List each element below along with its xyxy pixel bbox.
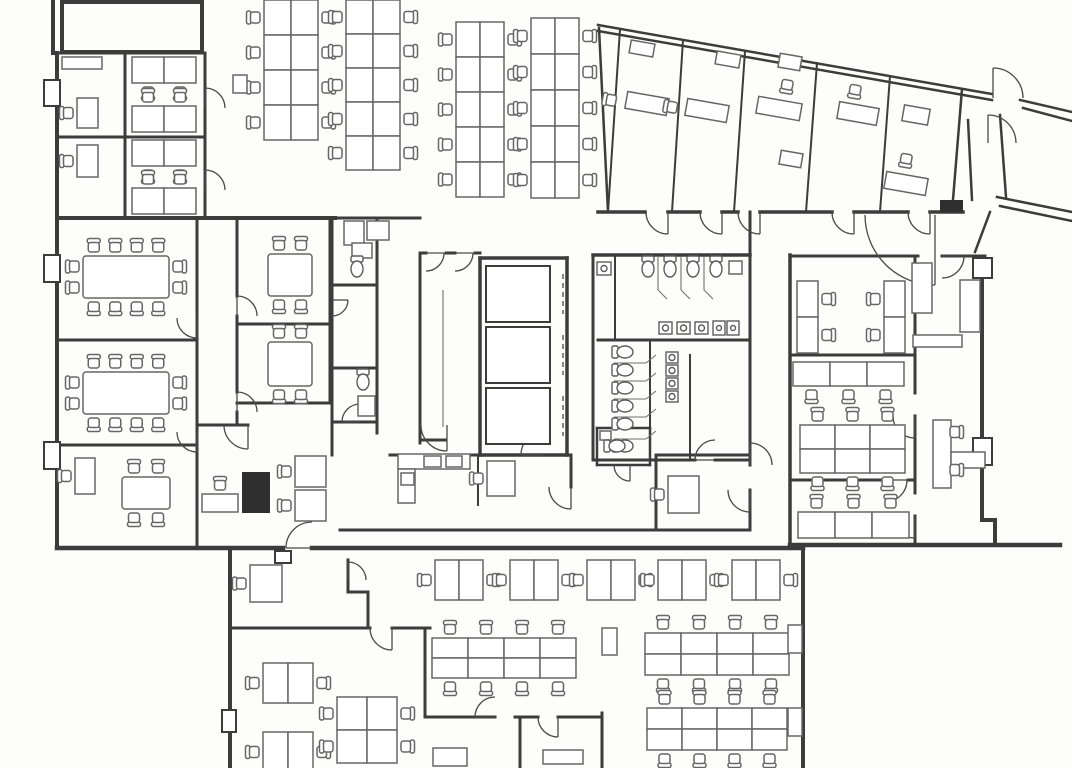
desk xyxy=(432,638,468,658)
desk xyxy=(164,106,196,132)
workstation xyxy=(278,490,327,521)
chair-seat xyxy=(129,464,140,474)
chair xyxy=(657,616,670,630)
couch xyxy=(913,335,962,347)
chair xyxy=(867,293,881,306)
chair xyxy=(329,45,343,58)
desk xyxy=(264,105,291,140)
chair-seat xyxy=(606,94,617,106)
chair xyxy=(130,355,143,369)
toilet-bowl xyxy=(617,400,633,412)
door-arc xyxy=(832,212,854,234)
door-arc xyxy=(538,717,558,737)
wall xyxy=(608,29,620,212)
chair xyxy=(152,418,165,432)
desk xyxy=(717,708,752,729)
chair-seat xyxy=(729,754,740,764)
chair xyxy=(842,390,855,404)
chair xyxy=(444,682,457,696)
door-arc xyxy=(646,212,668,234)
chair-seat xyxy=(518,175,528,186)
sink-basin xyxy=(681,325,687,331)
chair-seat xyxy=(900,153,912,164)
chair xyxy=(728,691,741,705)
conference-table xyxy=(268,342,312,386)
desk-cluster xyxy=(432,621,576,696)
desk xyxy=(884,171,928,195)
mop-sink xyxy=(729,261,742,274)
desk-cluster xyxy=(132,140,196,184)
chair xyxy=(583,66,597,79)
desk xyxy=(884,317,905,353)
chair xyxy=(174,89,187,103)
door-arc xyxy=(421,425,447,451)
desk xyxy=(682,560,706,600)
desk-cluster xyxy=(246,732,331,768)
chair-seat xyxy=(143,175,154,185)
chair-seat xyxy=(518,31,528,42)
toilet-bowl xyxy=(687,261,699,277)
chair-seat xyxy=(274,390,285,400)
desk xyxy=(433,748,467,766)
chair-seat xyxy=(153,418,164,428)
desk xyxy=(717,633,753,654)
chair-seat xyxy=(781,79,793,90)
desk xyxy=(555,90,579,126)
chair xyxy=(109,355,122,369)
chair-seat xyxy=(811,499,822,509)
chair xyxy=(763,691,776,705)
desk xyxy=(468,658,504,678)
chair xyxy=(152,239,165,253)
chair xyxy=(847,84,862,100)
desk xyxy=(555,126,579,162)
desk xyxy=(456,162,480,197)
sink-basin xyxy=(663,325,669,331)
chair xyxy=(273,300,286,314)
chair-seat xyxy=(237,578,247,589)
chair xyxy=(470,472,484,485)
chair xyxy=(87,302,100,316)
chair xyxy=(329,11,343,24)
chair xyxy=(418,574,432,587)
desk xyxy=(291,35,318,70)
door xyxy=(646,212,668,234)
chair-seat xyxy=(822,294,832,305)
chair-seat xyxy=(445,625,456,635)
chair xyxy=(516,621,529,635)
desk xyxy=(346,0,373,34)
desk xyxy=(132,57,164,83)
desk xyxy=(480,22,504,57)
desk xyxy=(531,126,555,162)
door-arc xyxy=(332,300,348,316)
chair xyxy=(329,79,343,92)
chair xyxy=(152,513,165,527)
chair xyxy=(247,11,261,24)
chair xyxy=(822,293,836,306)
desk xyxy=(800,425,835,449)
partition-line xyxy=(681,290,690,299)
chair xyxy=(728,754,741,768)
chair xyxy=(810,495,823,509)
chair xyxy=(66,397,80,410)
chair xyxy=(173,281,187,294)
door-arc xyxy=(286,522,312,548)
chair xyxy=(404,11,418,24)
chair-seat xyxy=(251,82,261,93)
door-arc xyxy=(993,68,1023,98)
elevator-car xyxy=(486,388,550,444)
chair-seat xyxy=(131,302,142,312)
chair-seat xyxy=(88,418,99,428)
chair xyxy=(552,682,565,696)
chair-seat xyxy=(443,34,453,45)
chair-seat xyxy=(583,175,593,186)
wall xyxy=(734,51,745,212)
desk xyxy=(132,140,164,166)
desk xyxy=(480,57,504,92)
toilet-icon xyxy=(642,256,654,277)
file-cabinet xyxy=(779,150,803,168)
sink-basin xyxy=(699,325,705,331)
chair-seat xyxy=(404,46,414,57)
chair-seat xyxy=(694,679,705,689)
sink-icon xyxy=(666,378,678,389)
chair-seat xyxy=(215,481,226,491)
toilet-icon xyxy=(612,382,633,394)
door-arc xyxy=(695,440,715,460)
chair-seat xyxy=(849,84,861,95)
chair-seat xyxy=(583,67,593,78)
door xyxy=(538,717,558,737)
chair-seat xyxy=(880,390,891,400)
door-arc xyxy=(205,88,225,108)
chair xyxy=(173,376,187,389)
toilet-bowl xyxy=(617,382,633,394)
chair-seat xyxy=(694,754,705,764)
sink xyxy=(600,431,611,440)
chair-seat xyxy=(583,103,593,114)
desk xyxy=(250,565,282,602)
desk xyxy=(870,425,905,449)
wall xyxy=(1000,206,1072,221)
chair-seat xyxy=(658,679,669,689)
chair xyxy=(66,260,80,273)
chair-seat xyxy=(574,575,584,586)
desk-return xyxy=(788,708,802,736)
door xyxy=(455,253,473,271)
chair xyxy=(152,460,165,474)
chair xyxy=(404,147,418,160)
desk xyxy=(752,708,787,729)
desk xyxy=(647,708,682,729)
door-arc xyxy=(728,490,750,512)
chair-seat xyxy=(694,695,705,705)
chair-seat xyxy=(518,139,528,150)
chair xyxy=(439,138,453,151)
chair-seat xyxy=(131,243,142,253)
workstation xyxy=(543,750,583,764)
desk xyxy=(681,633,717,654)
desk-cluster xyxy=(439,22,522,197)
chair-seat xyxy=(317,678,327,689)
desk xyxy=(373,68,400,102)
chair xyxy=(128,460,141,474)
chair xyxy=(273,390,286,404)
cabinet xyxy=(367,221,389,240)
desk-cluster xyxy=(715,560,798,600)
chair-seat xyxy=(445,682,456,692)
chair-seat xyxy=(848,499,859,509)
chair-seat xyxy=(110,418,121,428)
desk xyxy=(717,654,753,675)
chair-seat xyxy=(64,108,74,119)
chair-seat xyxy=(88,243,99,253)
chair-seat xyxy=(153,243,164,253)
desk xyxy=(870,449,905,473)
chair xyxy=(278,499,292,512)
desk xyxy=(798,512,835,538)
door-arc xyxy=(177,432,197,452)
chair xyxy=(58,470,72,483)
chair xyxy=(66,281,80,294)
chair xyxy=(246,746,260,759)
chair xyxy=(514,138,528,151)
chair xyxy=(401,707,415,720)
desk xyxy=(797,317,818,353)
workstation xyxy=(470,461,516,496)
chair-seat xyxy=(324,741,334,752)
chair-seat xyxy=(131,418,142,428)
desk xyxy=(681,654,717,675)
sink-basin xyxy=(601,266,607,272)
desk-cluster xyxy=(132,171,196,215)
toilet-icon xyxy=(710,256,722,277)
chair xyxy=(583,138,597,151)
desk xyxy=(555,54,579,90)
chair-seat xyxy=(655,489,665,500)
conference-table-group xyxy=(66,239,187,316)
chair-seat xyxy=(764,754,775,764)
chair xyxy=(884,495,897,509)
wall-mass xyxy=(940,200,963,212)
chair xyxy=(247,46,261,59)
desk xyxy=(835,512,872,538)
door xyxy=(205,170,225,190)
sink-basin xyxy=(669,394,675,400)
chair-seat xyxy=(481,682,492,692)
door xyxy=(177,432,197,452)
desk xyxy=(510,560,534,600)
chair-seat xyxy=(404,80,414,91)
chair-seat xyxy=(173,261,183,272)
chair xyxy=(480,682,493,696)
chair-seat xyxy=(70,377,80,388)
desk xyxy=(685,98,729,122)
chair-seat xyxy=(333,46,343,57)
wall-pilaster xyxy=(44,255,60,282)
desk xyxy=(835,449,870,473)
desk xyxy=(164,188,196,214)
chair xyxy=(779,79,794,95)
chair xyxy=(273,237,286,251)
chair xyxy=(811,408,824,422)
chair-seat xyxy=(296,241,307,251)
toilet-icon xyxy=(357,369,369,390)
desk xyxy=(291,0,318,35)
chair xyxy=(87,418,100,432)
chair-seat xyxy=(143,93,154,103)
chair-seat xyxy=(806,390,817,400)
chair xyxy=(173,397,187,410)
desk xyxy=(164,57,196,83)
chair xyxy=(846,477,859,491)
sink-icon xyxy=(666,352,678,363)
chair-seat xyxy=(153,359,164,369)
desk-cluster xyxy=(329,0,418,170)
desk-cluster xyxy=(247,0,336,140)
desk xyxy=(867,362,904,386)
desk xyxy=(480,162,504,197)
desk xyxy=(202,494,238,512)
desk xyxy=(647,729,682,750)
chair-seat xyxy=(333,80,343,91)
chair xyxy=(514,102,528,115)
desk xyxy=(346,68,373,102)
door-arc xyxy=(205,170,225,190)
chair xyxy=(87,239,100,253)
chair xyxy=(846,408,859,422)
chair-seat xyxy=(404,114,414,125)
chair-seat xyxy=(62,471,72,482)
chair xyxy=(601,92,617,107)
toilet-bowl xyxy=(617,364,633,376)
desk-cluster xyxy=(641,560,724,600)
chair xyxy=(320,707,334,720)
workstation xyxy=(60,145,99,177)
chair xyxy=(784,574,798,587)
chair-seat xyxy=(882,477,893,487)
wall-mass xyxy=(242,472,270,513)
wall-pilaster xyxy=(44,442,60,469)
desk xyxy=(756,96,802,120)
door-arc xyxy=(614,465,630,481)
wall-pilaster xyxy=(222,710,236,732)
chair-seat xyxy=(129,513,140,523)
chair xyxy=(480,621,493,635)
chair-seat xyxy=(843,390,854,400)
chair xyxy=(273,325,286,339)
chair xyxy=(130,302,143,316)
chair xyxy=(516,682,529,696)
desk xyxy=(456,22,480,57)
chair xyxy=(805,390,818,404)
door-arc xyxy=(549,487,571,509)
door-arc xyxy=(455,253,473,271)
chair xyxy=(233,577,247,590)
chair xyxy=(401,740,415,753)
desk xyxy=(645,633,681,654)
conference-table xyxy=(83,256,169,298)
desk xyxy=(264,70,291,105)
chair-seat xyxy=(88,302,99,312)
chair-seat xyxy=(173,398,183,409)
desk xyxy=(800,449,835,473)
chair-seat xyxy=(583,31,593,42)
chair-seat xyxy=(694,620,705,630)
desk xyxy=(132,106,164,132)
desk-cluster xyxy=(797,281,836,353)
desk xyxy=(435,560,459,600)
chair xyxy=(583,30,597,43)
partition-line xyxy=(658,290,667,299)
conference-table xyxy=(122,477,170,509)
chair-seat xyxy=(871,294,881,305)
chair xyxy=(867,329,881,342)
toilet-bowl xyxy=(351,261,363,277)
desk xyxy=(367,730,397,763)
chair xyxy=(142,171,155,185)
chair-seat xyxy=(404,12,414,23)
chair xyxy=(142,89,155,103)
chair-seat xyxy=(64,156,74,167)
chair-seat xyxy=(443,174,453,185)
desk-cluster xyxy=(320,697,415,763)
chair-seat xyxy=(885,499,896,509)
chair-seat xyxy=(282,466,292,477)
door xyxy=(426,253,444,271)
desk-cluster xyxy=(132,89,196,133)
chair-seat xyxy=(812,477,823,487)
toilet-bowl xyxy=(664,261,676,277)
chair xyxy=(583,102,597,115)
sink-icon xyxy=(666,391,678,402)
desk xyxy=(346,102,373,136)
desk xyxy=(132,188,164,214)
couch xyxy=(912,263,932,313)
floor-plan xyxy=(0,0,1072,768)
door xyxy=(750,443,772,465)
chair xyxy=(320,740,334,753)
sink-icon xyxy=(666,365,678,376)
l-desk xyxy=(933,420,951,488)
desk xyxy=(459,560,483,600)
wall xyxy=(880,76,890,212)
chair xyxy=(658,691,671,705)
chair-seat xyxy=(401,708,411,719)
chair-seat xyxy=(422,575,432,586)
chair xyxy=(493,574,507,587)
desk-cluster xyxy=(493,560,576,600)
chair-seat xyxy=(333,114,343,125)
desk-cluster xyxy=(418,560,501,600)
chair-seat xyxy=(764,695,775,705)
chair-seat xyxy=(250,747,260,758)
desk xyxy=(668,476,699,513)
chair xyxy=(152,302,165,316)
floor-plan-page xyxy=(0,0,1072,768)
chair xyxy=(439,103,453,116)
chair-seat xyxy=(153,302,164,312)
door-arc xyxy=(475,697,495,717)
desk-cluster xyxy=(645,616,789,693)
chair xyxy=(404,45,418,58)
chair xyxy=(128,513,141,527)
column xyxy=(233,75,247,93)
desk xyxy=(373,102,400,136)
chair xyxy=(950,464,964,477)
